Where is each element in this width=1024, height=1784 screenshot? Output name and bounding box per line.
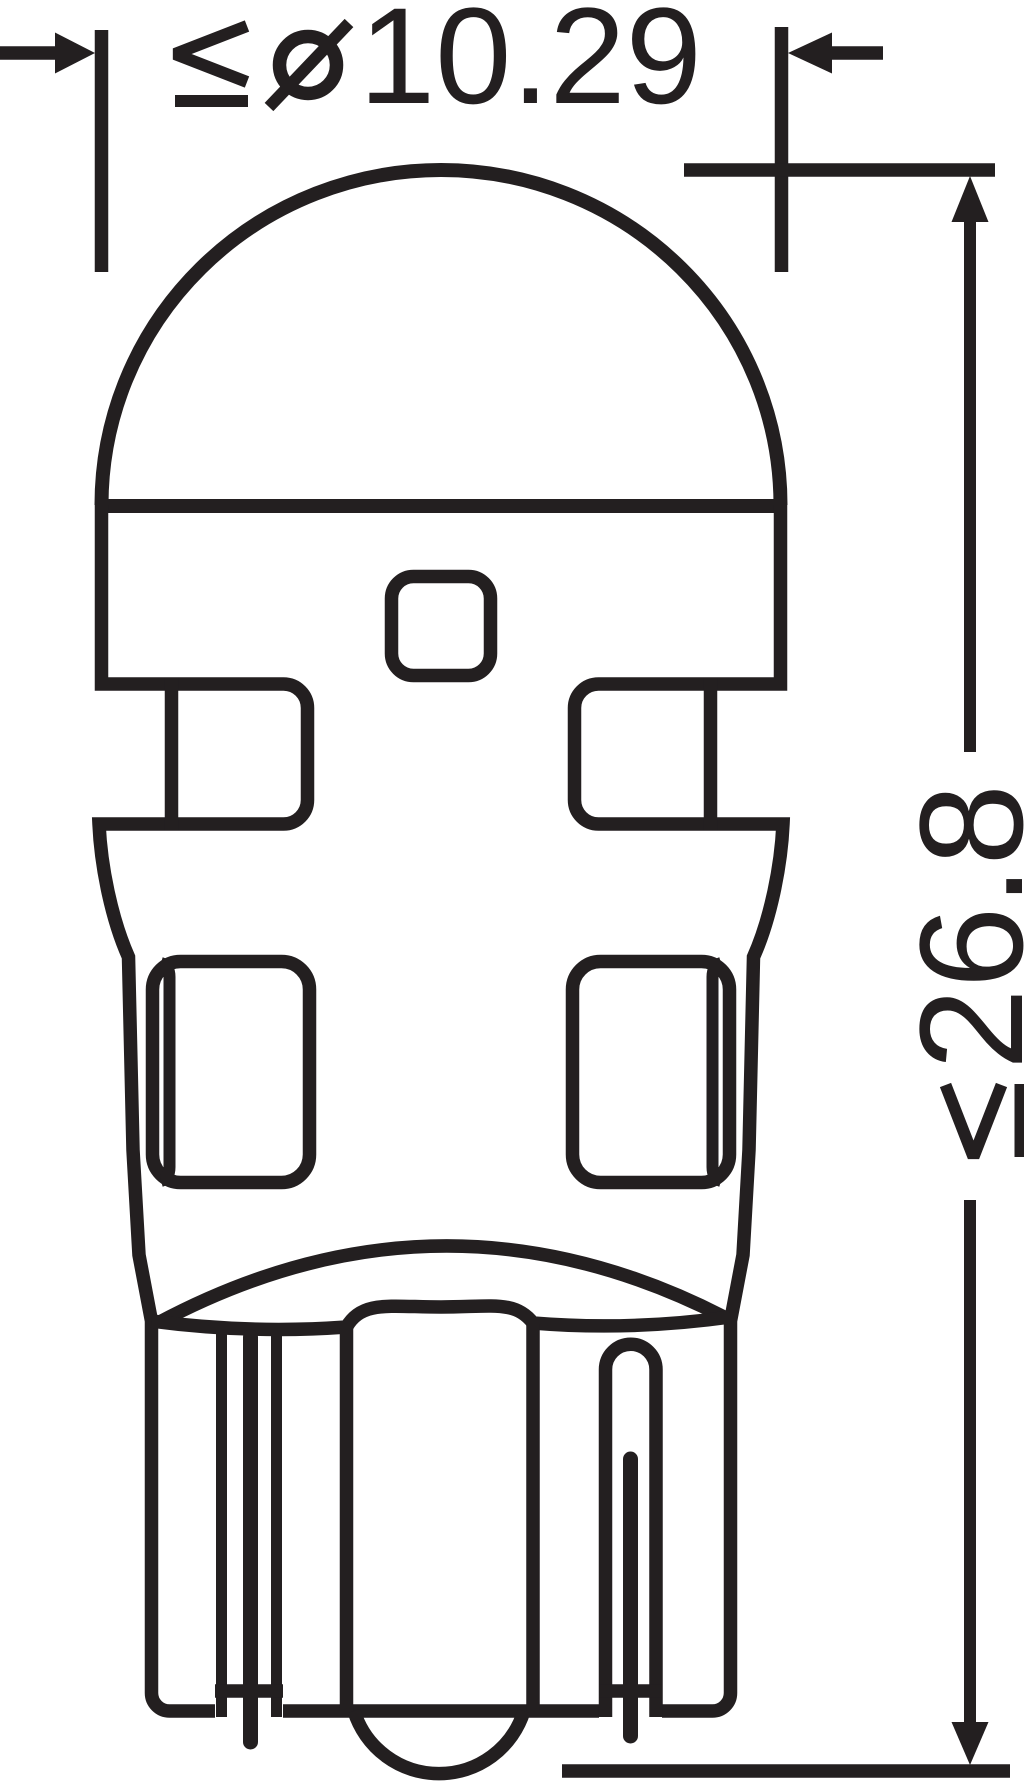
svg-text:10.29: 10.29: [359, 0, 702, 133]
svg-text:26.8: 26.8: [890, 784, 1024, 1070]
